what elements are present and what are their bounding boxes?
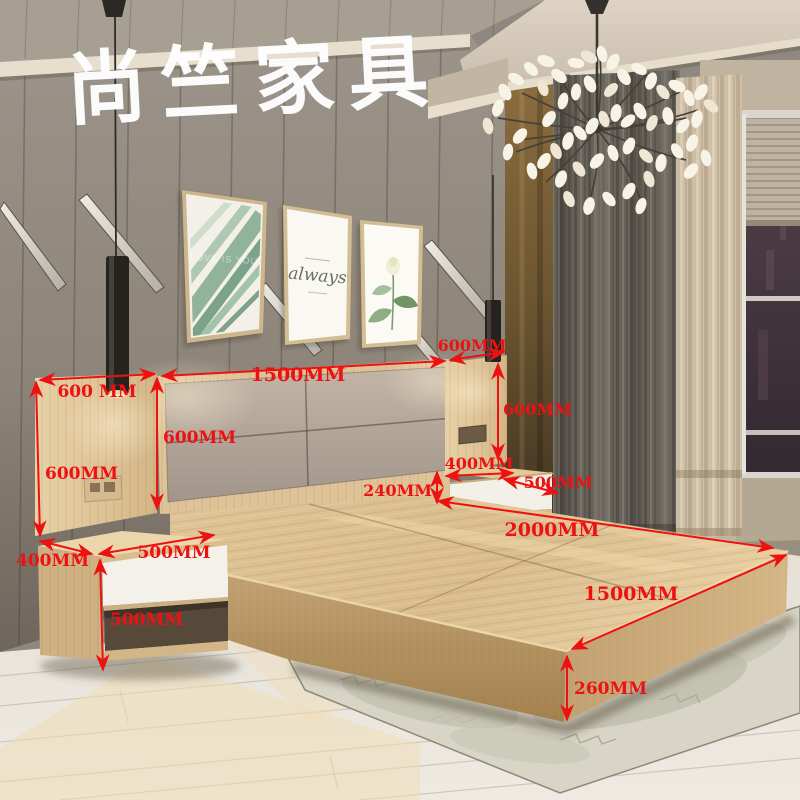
dim-right-nightstand-width: 500MM bbox=[524, 473, 593, 492]
dim-bed-length: 2000MM bbox=[505, 519, 600, 541]
dim-headboard-width: 1500MM bbox=[251, 364, 346, 386]
product-photo-bed-scene: LOVE IS YOU always bbox=[0, 0, 800, 800]
dim-left-nightstand-width: 500MM bbox=[137, 543, 210, 563]
dim-left-nightstand-height: 500MM bbox=[110, 610, 183, 630]
dim-left-panel-width: 600 MM bbox=[57, 382, 136, 402]
curtains bbox=[553, 70, 742, 537]
dim-left-nightstand-depth: 400MM bbox=[16, 551, 89, 571]
window-blinds bbox=[744, 118, 800, 224]
wall-outlet-right bbox=[459, 425, 486, 444]
dim-bed-width: 1500MM bbox=[584, 583, 679, 605]
wall-below-window bbox=[736, 478, 800, 544]
dim-right-panel-height: 600MM bbox=[503, 400, 572, 419]
sheer-curtain bbox=[676, 74, 742, 537]
dim-right-nightstand-depth: 400MM bbox=[445, 454, 514, 473]
dim-left-panel-height: 600MM bbox=[45, 464, 118, 484]
scene-canvas: LOVE IS YOU always bbox=[0, 0, 800, 800]
dim-bed-height-front: 260MM bbox=[574, 679, 647, 699]
art-frame-left: LOVE IS YOU bbox=[179, 190, 267, 347]
window bbox=[736, 110, 800, 482]
brand-watermark: 尚竺家具 bbox=[64, 24, 444, 137]
dim-bed-height-side: 240MM bbox=[363, 481, 432, 500]
art-frame-middle: always bbox=[280, 205, 352, 348]
art-frame-right bbox=[357, 220, 423, 351]
dim-right-panel-width: 600MM bbox=[438, 336, 507, 355]
dim-headboard-height: 600MM bbox=[163, 428, 236, 448]
